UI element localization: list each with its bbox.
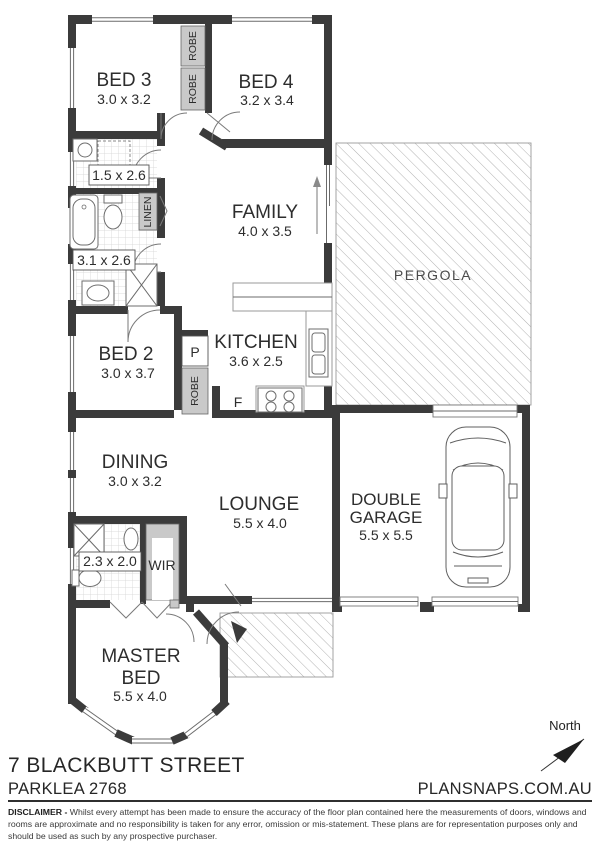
window-lounge-front <box>252 596 332 604</box>
wir-label: WIR <box>148 557 175 573</box>
fridge-label: F <box>234 394 243 410</box>
garage-car <box>439 427 517 587</box>
garage-label1: DOUBLE <box>351 490 421 509</box>
address-line2: PARKLEA 2768 <box>8 780 127 799</box>
pergola-label: PERGOLA <box>394 267 472 283</box>
kitchen-dims: 3.6 x 2.5 <box>229 353 283 369</box>
ensuite-basin <box>124 528 138 550</box>
bay-window <box>71 699 227 743</box>
ensuite-toilet <box>79 570 101 587</box>
linen-label: LINEN <box>142 197 154 228</box>
garage-door-left <box>340 597 418 606</box>
bed2-label: BED 2 <box>99 344 154 365</box>
bed4-label: BED 4 <box>239 72 294 93</box>
garage-door-right <box>432 597 518 606</box>
master-door <box>166 614 194 642</box>
master-dims: 5.5 x 4.0 <box>113 688 167 704</box>
sliding-door-family <box>313 165 332 243</box>
ensuite-shower <box>74 524 104 556</box>
dining-dims: 3.0 x 3.2 <box>108 473 162 489</box>
dining-label: DINING <box>102 452 169 473</box>
window-top-bed3 <box>92 15 153 24</box>
cooktop <box>258 388 302 412</box>
pantry-label: P <box>190 344 199 360</box>
bed3-dims: 3.0 x 3.2 <box>97 91 151 107</box>
toilet <box>104 205 122 229</box>
footer-rule: PARKLEA 2768 PLANSNAPS.COM.AU <box>8 779 592 802</box>
wir-bifold-door <box>142 602 172 618</box>
laundry-dims: 1.5 x 2.6 <box>92 167 146 183</box>
north-arrow: North <box>541 718 584 771</box>
slide-arrow-icon <box>313 176 321 187</box>
porch-area <box>220 613 333 677</box>
robe-bed2-label: ROBE <box>189 376 201 406</box>
toilet-tank <box>104 195 122 203</box>
window-left-dining2 <box>68 478 76 512</box>
kitchen-label: KITCHEN <box>214 332 297 353</box>
disclaimer-text: Whilst every attempt has been made to en… <box>8 807 587 841</box>
floor-plan-page: BED 3 3.0 x 3.2 BED 4 3.2 x 3.4 1.5 x 2.… <box>0 0 600 849</box>
family-dims: 4.0 x 3.5 <box>238 223 292 239</box>
bed2-dims: 3.0 x 3.7 <box>101 365 155 381</box>
lounge-dims: 5.5 x 4.0 <box>233 515 287 531</box>
car-mirror-right <box>509 484 517 498</box>
robe-top-label: ROBE <box>187 31 199 61</box>
lounge-label: LOUNGE <box>219 494 299 515</box>
window-left-dining1 <box>68 432 76 470</box>
family-label: FAMILY <box>232 202 298 223</box>
master-label1: MASTER <box>101 646 180 667</box>
window-top-bed4 <box>232 15 312 24</box>
north-arrowhead-icon <box>553 739 584 763</box>
window-left-bed2 <box>68 336 76 392</box>
floor-plan: BED 3 3.0 x 3.2 BED 4 3.2 x 3.4 1.5 x 2.… <box>0 0 600 849</box>
window-left-bed3 <box>68 48 76 108</box>
ensuite-bifold-door <box>110 602 142 618</box>
garage-dims: 5.5 x 5.5 <box>359 527 413 543</box>
disclaimer: DISCLAIMER - Whilst every attempt has be… <box>8 806 592 843</box>
north-label: North <box>549 718 581 733</box>
bed3-label: BED 3 <box>97 70 152 91</box>
master-label2: BED <box>121 668 160 689</box>
address-line1: 7 BLACKBUTT STREET <box>8 754 245 778</box>
robe-bottom-label: ROBE <box>187 74 199 104</box>
ensuite-dims: 2.3 x 2.0 <box>83 553 137 569</box>
brand-text: PLANSNAPS.COM.AU <box>418 780 592 799</box>
bathroom-dims: 3.1 x 2.6 <box>77 252 131 268</box>
garage-label2: GARAGE <box>350 508 423 527</box>
ensuite-toilet-tank <box>72 570 79 586</box>
bed4-dims: 3.2 x 3.4 <box>240 92 294 108</box>
bed2-door <box>128 310 160 342</box>
garage-rear-opening <box>433 405 517 417</box>
disclaimer-label: DISCLAIMER - <box>8 807 67 817</box>
car-mirror-left <box>439 484 447 498</box>
